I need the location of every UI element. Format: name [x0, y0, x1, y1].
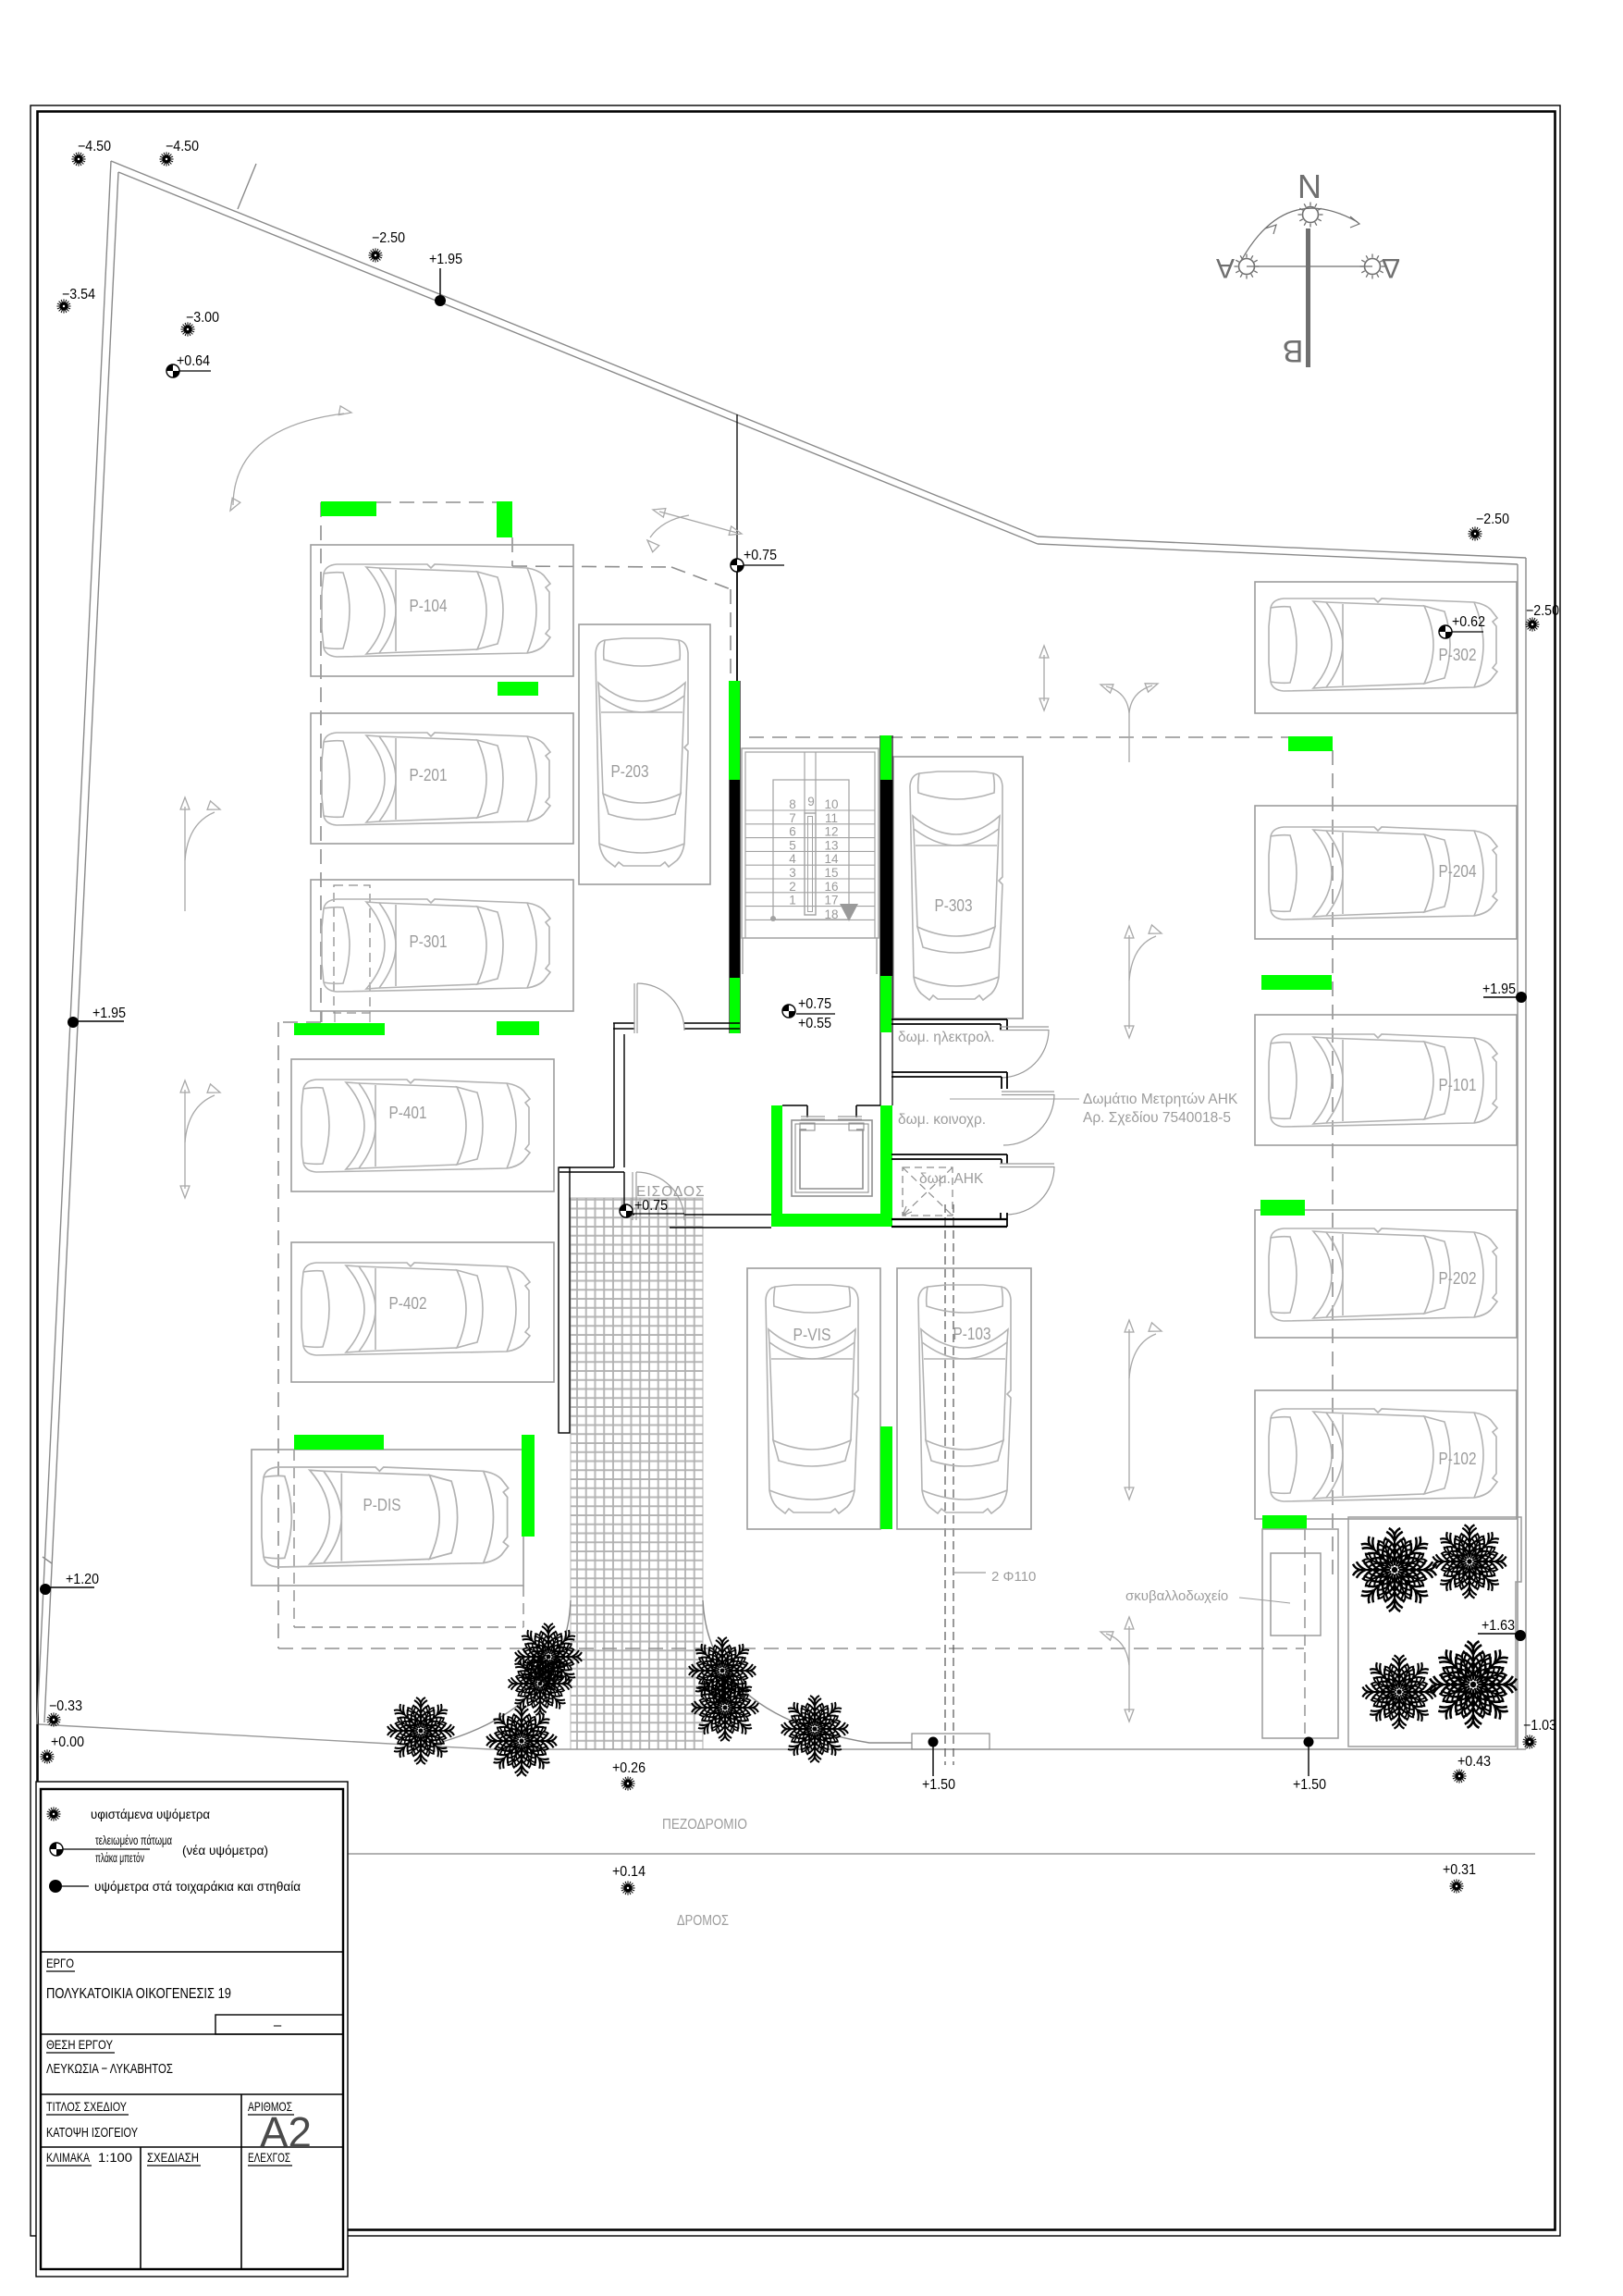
svg-text:1:100: 1:100 [98, 2150, 132, 2165]
svg-text:−2.50: −2.50 [372, 230, 405, 246]
svg-text:−4.50: −4.50 [78, 139, 111, 154]
svg-text:+0.00: +0.00 [51, 1734, 84, 1750]
svg-text:Αρ. Σχεδίου 7540018-5: Αρ. Σχεδίου 7540018-5 [1083, 1110, 1231, 1126]
svg-text:δωμ. ΑΗΚ: δωμ. ΑΗΚ [919, 1171, 984, 1187]
svg-text:P-402: P-402 [389, 1293, 427, 1313]
svg-text:8: 8 [789, 797, 796, 811]
svg-text:+0.75: +0.75 [634, 1198, 668, 1214]
svg-text:Δωμάτιο Μετρητών ΑΗΚ: Δωμάτιο Μετρητών ΑΗΚ [1083, 1092, 1238, 1107]
svg-text:P-202: P-202 [1439, 1268, 1477, 1288]
svg-text:πλάκα μπετόν: πλάκα μπετόν [95, 1850, 144, 1865]
svg-text:13: 13 [824, 838, 838, 852]
svg-text:6: 6 [789, 825, 796, 839]
svg-text:υφιστάμενα υψόμετρα: υφιστάμενα υψόμετρα [91, 1807, 210, 1821]
svg-text:P-303: P-303 [935, 895, 973, 915]
svg-text:P-101: P-101 [1439, 1075, 1477, 1094]
svg-text:ΕΛΕΧΓΟΣ: ΕΛΕΧΓΟΣ [248, 2150, 290, 2165]
svg-text:9: 9 [807, 795, 815, 809]
svg-text:+1.95: +1.95 [92, 1006, 126, 1021]
svg-text:−3.54: −3.54 [62, 287, 95, 302]
svg-text:P-201: P-201 [410, 765, 448, 784]
svg-text:+1.63: +1.63 [1482, 1618, 1515, 1634]
svg-text:P-103: P-103 [953, 1324, 991, 1343]
svg-text:10: 10 [824, 797, 838, 811]
svg-text:16: 16 [824, 880, 838, 894]
svg-text:δωμ. κοινοχρ.: δωμ. κοινοχρ. [898, 1112, 986, 1128]
svg-text:14: 14 [824, 852, 839, 866]
svg-text:+0.62: +0.62 [1452, 614, 1485, 630]
svg-text:15: 15 [824, 866, 838, 880]
svg-text:+1.95: +1.95 [1482, 981, 1516, 997]
svg-text:3: 3 [789, 866, 796, 880]
svg-text:δωμ. ηλεκτρολ.: δωμ. ηλεκτρολ. [898, 1030, 995, 1045]
svg-text:P-203: P-203 [611, 761, 649, 781]
svg-text:ΘΕΣΗ ΕΡΓΟΥ: ΘΕΣΗ ΕΡΓΟΥ [46, 2037, 114, 2052]
svg-text:ΣΧΕΔΙΑΣΗ: ΣΧΕΔΙΑΣΗ [147, 2150, 199, 2165]
svg-text:2: 2 [789, 880, 796, 894]
svg-text:−1.03: −1.03 [1523, 1718, 1556, 1734]
svg-text:N: N [1297, 167, 1322, 205]
svg-text:+0.64: +0.64 [177, 353, 210, 369]
svg-text:+0.75: +0.75 [798, 996, 831, 1012]
svg-text:P-104: P-104 [410, 596, 448, 615]
svg-text:P-302: P-302 [1439, 645, 1477, 664]
svg-text:−2.50: −2.50 [1526, 603, 1559, 619]
svg-text:ΚΛΙΜΑΚΑ: ΚΛΙΜΑΚΑ [46, 2150, 90, 2165]
svg-text:σκυβαλλοδωχείο: σκυβαλλοδωχείο [1125, 1588, 1228, 1604]
svg-text:P-204: P-204 [1439, 861, 1477, 881]
svg-text:–: – [274, 2018, 282, 2033]
svg-text:ΔΡΟΜΟΣ: ΔΡΟΜΟΣ [677, 1913, 729, 1929]
svg-text:−0.33: −0.33 [49, 1698, 82, 1714]
svg-text:ΠΕΖΟΔΡΟΜΙΟ: ΠΕΖΟΔΡΟΜΙΟ [662, 1817, 747, 1833]
svg-text:+1.95: +1.95 [429, 252, 462, 267]
svg-text:+0.43: +0.43 [1457, 1754, 1491, 1770]
svg-text:(νέα υψόμετρα): (νέα υψόμετρα) [182, 1843, 268, 1858]
svg-text:+1.20: +1.20 [66, 1572, 99, 1587]
svg-text:υψόμετρα στά τοιχαράκια και στ: υψόμετρα στά τοιχαράκια και στηθαία [94, 1879, 301, 1894]
svg-text:P-102: P-102 [1439, 1449, 1477, 1468]
svg-text:12: 12 [824, 825, 838, 839]
svg-text:+1.50: +1.50 [1293, 1777, 1326, 1793]
svg-text:τελειωμένο πάτωμα: τελειωμένο πάτωμα [95, 1833, 172, 1847]
svg-text:P-DIS: P-DIS [363, 1495, 401, 1514]
svg-text:P-301: P-301 [410, 932, 448, 951]
svg-text:+0.26: +0.26 [612, 1760, 646, 1776]
svg-text:B: B [1283, 333, 1304, 368]
svg-text:+0.75: +0.75 [744, 548, 777, 563]
svg-text:+0.55: +0.55 [798, 1016, 831, 1031]
svg-text:P-401: P-401 [389, 1103, 427, 1122]
svg-text:ΛΕΥΚΩΣΙΑ − ΛΥΚΑΒΗΤΟΣ: ΛΕΥΚΩΣΙΑ − ΛΥΚΑΒΗΤΟΣ [46, 2061, 173, 2077]
svg-text:−4.50: −4.50 [166, 139, 199, 154]
svg-text:5: 5 [789, 838, 796, 852]
svg-text:−2.50: −2.50 [1476, 512, 1509, 527]
svg-text:18: 18 [824, 907, 838, 921]
svg-text:P-VIS: P-VIS [793, 1325, 831, 1344]
svg-text:+1.50: +1.50 [922, 1777, 955, 1793]
svg-text:−3.00: −3.00 [186, 310, 219, 326]
svg-text:Δ: Δ [1382, 253, 1400, 283]
svg-text:17: 17 [824, 894, 838, 907]
svg-text:+0.31: +0.31 [1443, 1862, 1476, 1878]
svg-text:7: 7 [789, 811, 796, 825]
svg-text:ΕΡΓΟ: ΕΡΓΟ [46, 1956, 74, 1970]
svg-text:4: 4 [789, 852, 796, 866]
svg-text:1: 1 [789, 894, 796, 907]
svg-text:ΚΑΤΟΨΗ ΙΣΟΓΕΙΟΥ: ΚΑΤΟΨΗ ΙΣΟΓΕΙΟΥ [46, 2125, 138, 2141]
svg-text:ΠΟΛΥΚΑΤΟΙΚΙΑ ΟΙΚΟΓΕΝΕΣΙΣ 19: ΠΟΛΥΚΑΤΟΙΚΙΑ ΟΙΚΟΓΕΝΕΣΙΣ 19 [46, 1986, 231, 2002]
svg-text:+0.14: +0.14 [612, 1864, 646, 1880]
svg-text:2 Φ110: 2 Φ110 [991, 1569, 1036, 1585]
svg-text:ΤΙΤΛΟΣ ΣΧΕΔΙΟΥ: ΤΙΤΛΟΣ ΣΧΕΔΙΟΥ [46, 2099, 128, 2114]
svg-text:A: A [1216, 253, 1235, 283]
svg-text:11: 11 [825, 811, 838, 825]
